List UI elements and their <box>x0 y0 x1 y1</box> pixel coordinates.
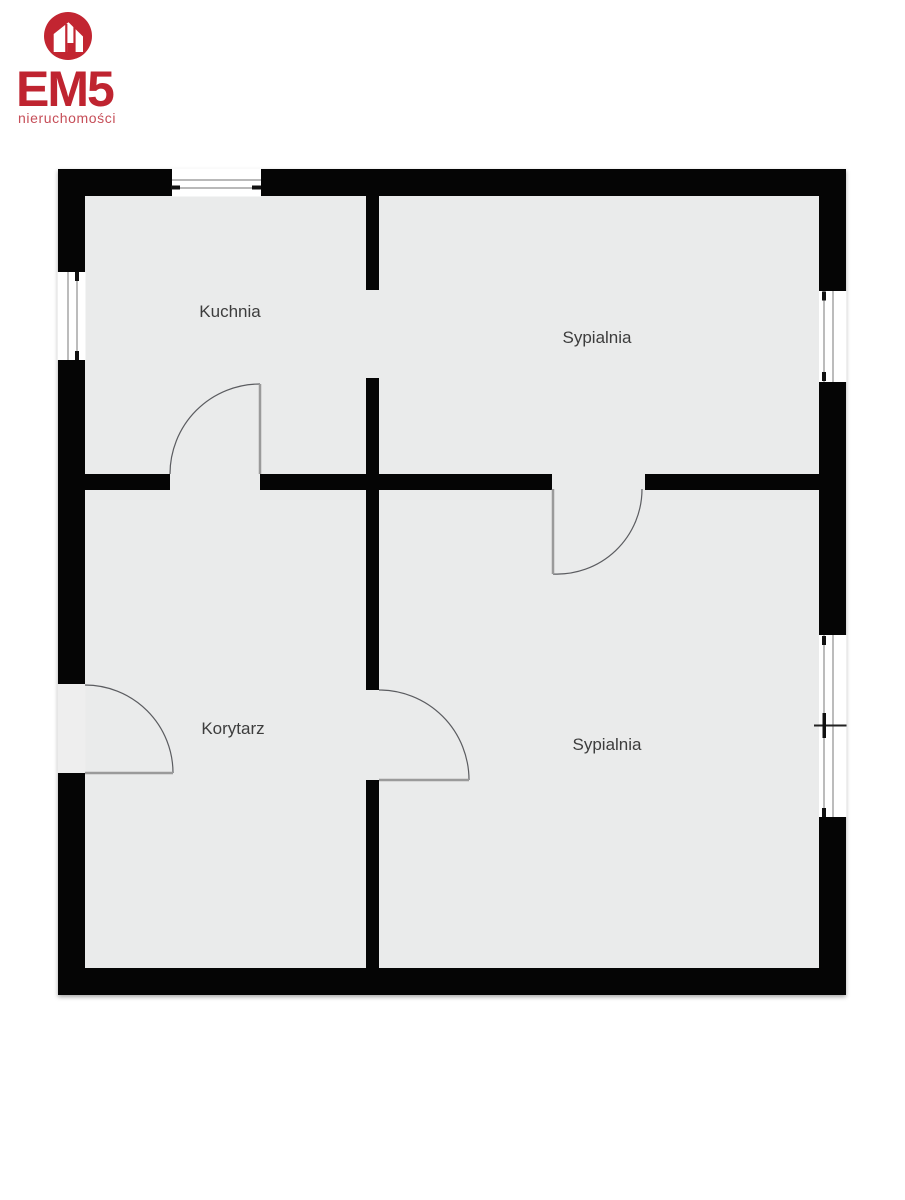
window-end-cap <box>822 808 826 817</box>
exterior-walls <box>58 169 846 995</box>
window-right-upper <box>819 291 847 382</box>
window-left <box>58 272 86 360</box>
window-opening <box>58 272 86 360</box>
interior-wall-vertical-top <box>366 196 379 290</box>
door-opening <box>58 684 86 773</box>
window-end-cap <box>822 636 826 645</box>
room-label-korytarz: Korytarz <box>201 719 264 738</box>
room-label-sypialnia-gorna: Sypialnia <box>563 328 633 347</box>
interior-wall-horizontal-middle <box>260 474 552 490</box>
window-top <box>171 169 261 197</box>
room-label-sypialnia-dolna: Sypialnia <box>573 735 643 754</box>
interior-wall-horizontal-right <box>645 474 819 490</box>
room-label-kuchnia: Kuchnia <box>199 302 261 321</box>
floorplan-page: EM5 nieruchomości <box>0 0 905 1200</box>
window-opening <box>172 169 261 197</box>
floor-area <box>85 196 819 968</box>
window-end-cap <box>75 351 79 360</box>
interior-wall-vertical-bottom <box>366 780 379 968</box>
interior-wall-vertical-middle <box>366 378 379 690</box>
window-end-cap <box>171 186 180 190</box>
window-end-cap <box>252 186 261 190</box>
window-end-cap <box>75 272 79 281</box>
window-end-cap <box>822 372 826 381</box>
interior-wall-horizontal-left <box>85 474 170 490</box>
window-end-cap <box>822 292 826 301</box>
window-center-tick <box>823 713 827 738</box>
floorplan-drawing: Kuchnia Sypialnia Korytarz Sypialnia <box>0 0 905 1200</box>
